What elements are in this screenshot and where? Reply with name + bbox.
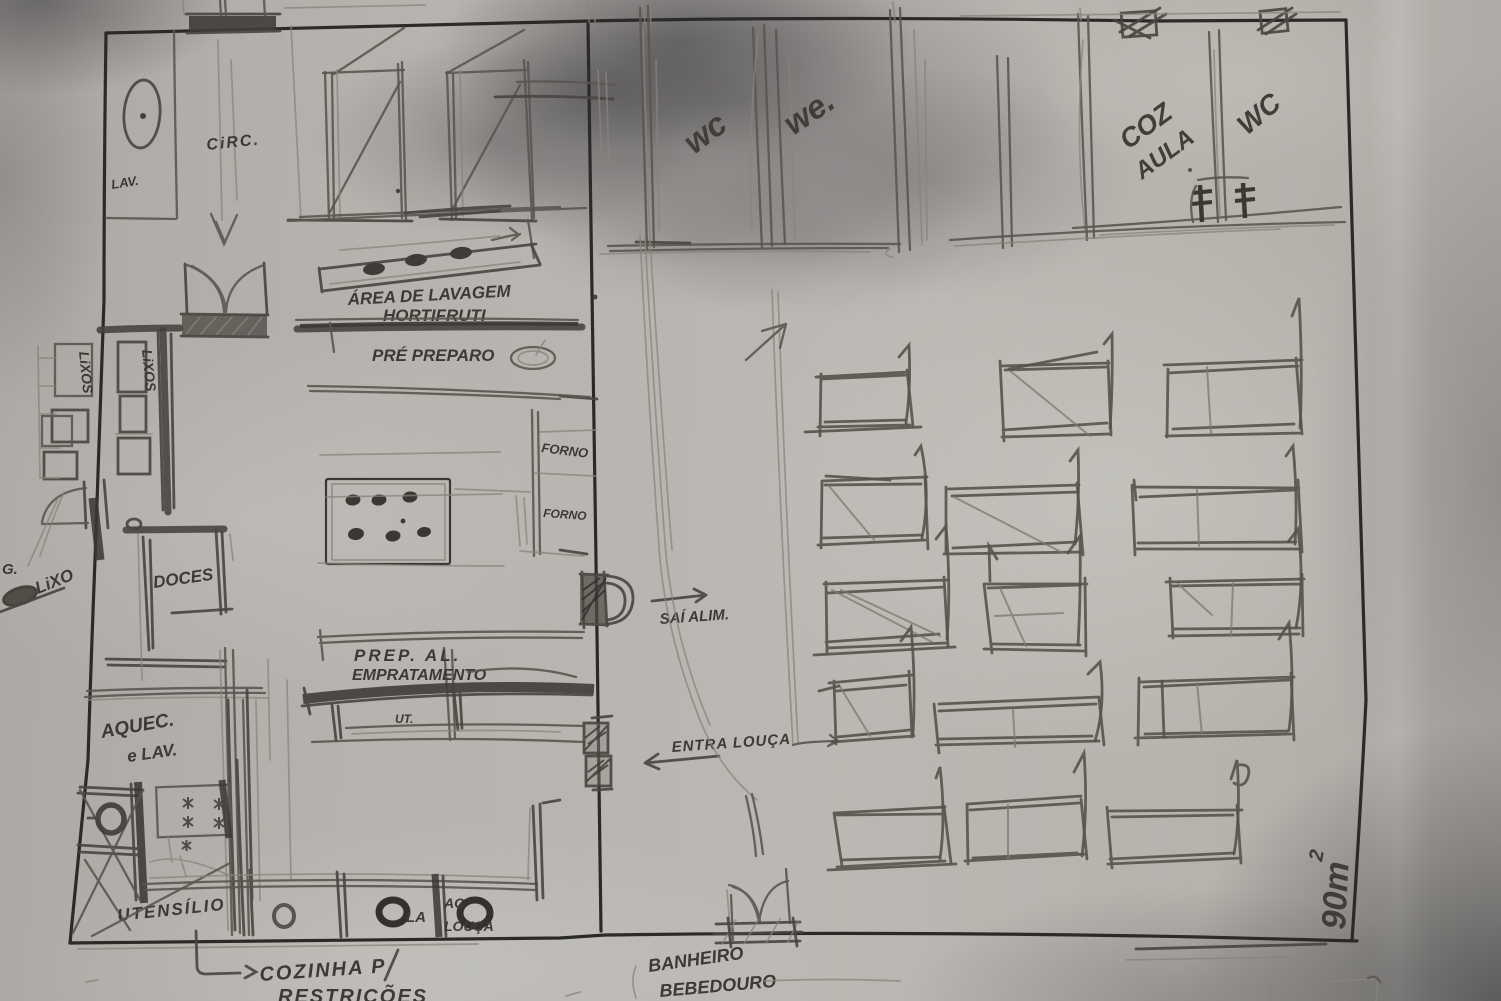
svg-text:LOUÇA: LOUÇA [444, 918, 494, 934]
svg-text:LAV.: LAV. [110, 173, 139, 192]
svg-text:UT.: UT. [395, 712, 413, 726]
svg-text:90m: 90m [1315, 860, 1357, 930]
svg-text:UTENSÍLIO: UTENSÍLIO [116, 895, 226, 925]
svg-text:FORNO: FORNO [543, 506, 588, 523]
svg-text:COZINHA P: COZINHA P [259, 955, 387, 986]
svg-text:PRÉ PREPARO: PRÉ PREPARO [372, 346, 495, 365]
svg-text:DOCES: DOCES [152, 565, 215, 592]
svg-text:we.: we. [776, 81, 841, 141]
svg-text:e LAV.: e LAV. [126, 740, 178, 766]
svg-text:2: 2 [1305, 848, 1329, 864]
svg-text:EMPRATAMENTO: EMPRATAMENTO [352, 667, 487, 684]
svg-text:PREP. AL.: PREP. AL. [354, 646, 461, 665]
svg-text:LiXOS: LiXOS [76, 351, 96, 395]
svg-text:BANHEIRO: BANHEIRO [647, 943, 745, 976]
svg-text:wc: wc [676, 105, 733, 161]
svg-text:G.: G. [2, 561, 18, 578]
svg-text:RESTRIÇÕES: RESTRIÇÕES [278, 984, 428, 1001]
svg-text:BEBEDOURO: BEBEDOURO [659, 971, 777, 1001]
svg-text:FORNO: FORNO [541, 440, 589, 461]
svg-text:WC: WC [1231, 86, 1287, 140]
svg-text:AQUEC.: AQUEC. [98, 709, 175, 743]
svg-text:ENTRA LOUÇA: ENTRA LOUÇA [671, 731, 792, 756]
svg-text:AG: AG [443, 895, 465, 911]
svg-text:LiXOS: LiXOS [139, 349, 159, 393]
svg-text:LA: LA [406, 909, 426, 926]
svg-text:CiRC.: CiRC. [206, 131, 261, 154]
